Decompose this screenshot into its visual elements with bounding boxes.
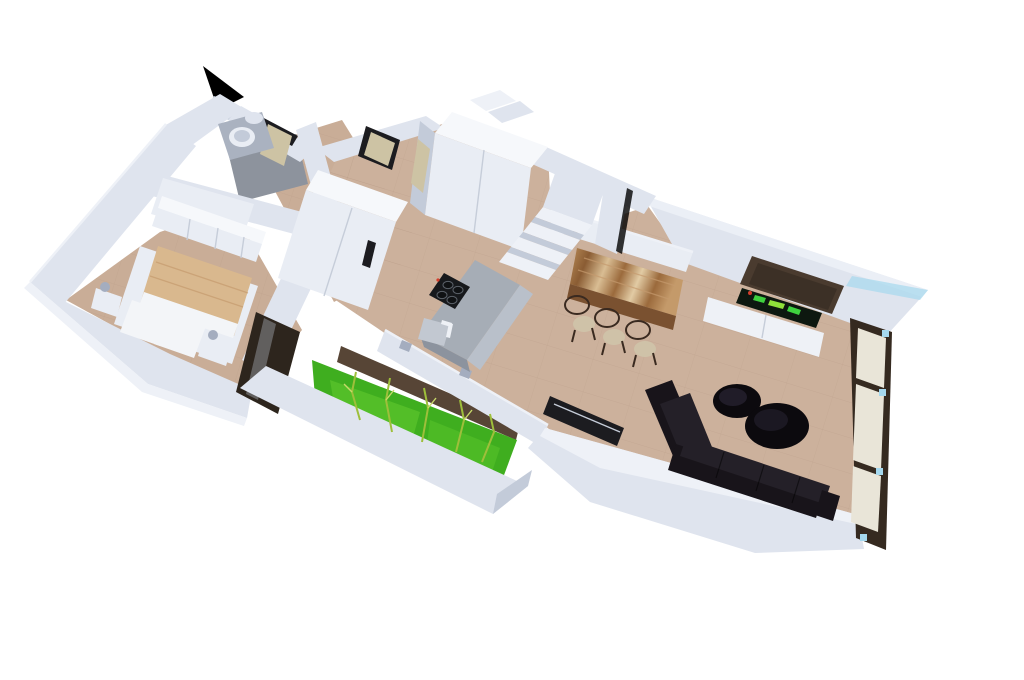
lamp-left [100, 282, 110, 292]
window-pane-2 [853, 384, 884, 470]
floorplan-3d-render [0, 0, 1024, 680]
vanity-basin-inner [234, 130, 250, 142]
burner-3 [437, 291, 447, 298]
glass-clip-3 [876, 468, 883, 475]
glass-clip-4 [860, 534, 867, 541]
cooktop-indicator [436, 278, 439, 281]
toilet-cistern [245, 112, 263, 124]
glass-clip-2 [879, 389, 886, 396]
window-pane-1 [856, 328, 886, 388]
window-pane-3 [851, 466, 881, 532]
burner-1 [443, 281, 453, 288]
coffee-table-small-sheen [719, 388, 747, 406]
burner-2 [453, 286, 463, 293]
burner-4 [447, 296, 457, 303]
glass-clip-1 [882, 330, 889, 337]
floorplan-stage [0, 0, 1024, 680]
tv-standby-light [748, 291, 752, 295]
lamp-right [208, 330, 218, 340]
coffee-table-large-sheen [754, 409, 788, 431]
